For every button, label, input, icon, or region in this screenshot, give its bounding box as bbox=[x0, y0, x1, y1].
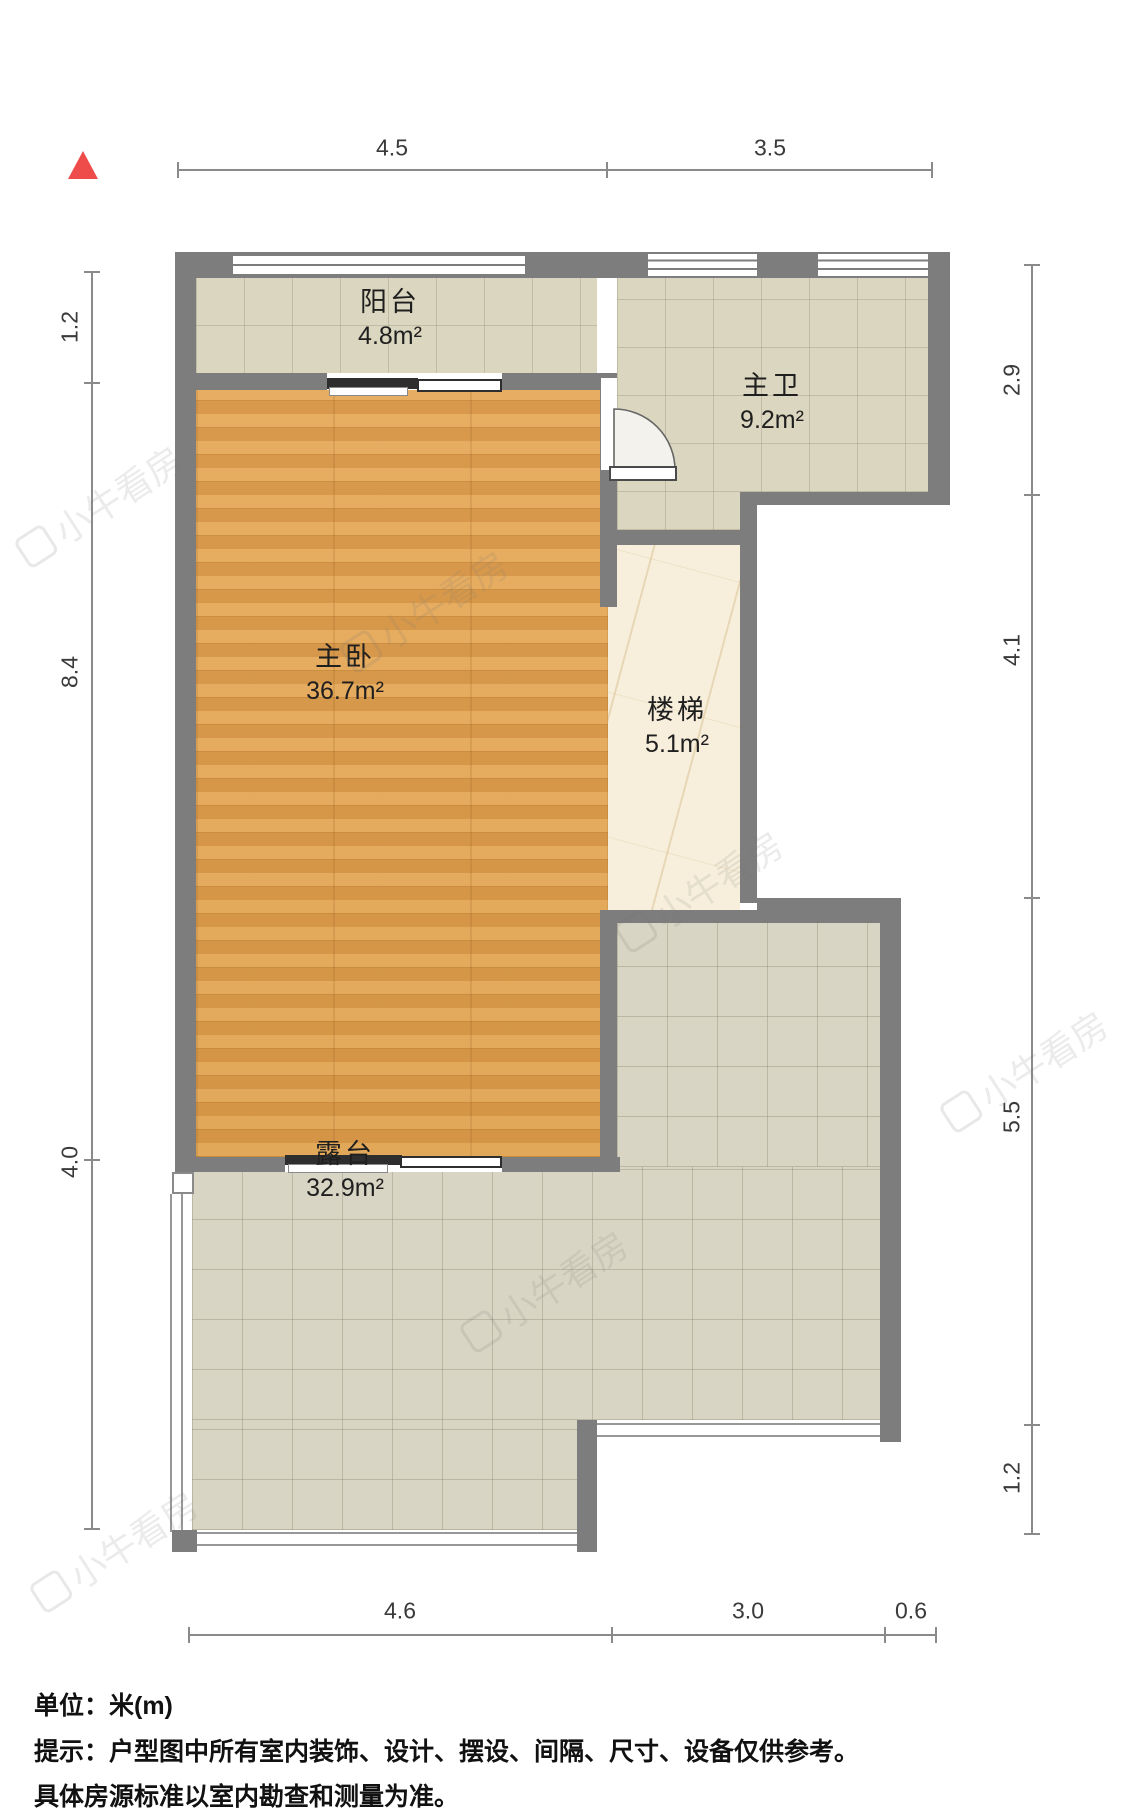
terrace-floor-upper bbox=[617, 923, 880, 1167]
room-name: 阳台 bbox=[358, 286, 422, 320]
dim-tick bbox=[84, 271, 100, 273]
bath-door-swing-arc bbox=[613, 408, 677, 472]
bath-door-leaf bbox=[609, 466, 677, 481]
dim-value: 4.5 bbox=[376, 135, 408, 162]
dim-line bbox=[1031, 265, 1033, 1535]
dim-line bbox=[178, 169, 933, 171]
watermark: 小牛看房 bbox=[8, 433, 192, 578]
dim-tick bbox=[1024, 1533, 1040, 1535]
room-name: 露台 bbox=[306, 1138, 384, 1172]
bath-window-1 bbox=[648, 252, 757, 278]
wall-bath-bottom-right bbox=[740, 492, 950, 505]
dim-tick bbox=[188, 1627, 190, 1643]
dim-tick bbox=[611, 1627, 613, 1643]
dim-line bbox=[91, 272, 93, 1530]
dim-tick bbox=[84, 1159, 100, 1161]
watermark-text: 小牛看房 bbox=[43, 433, 192, 555]
floorplan-page: 阳台 4.8m² 主卫 9.2m² 主卧 36.7m² 楼梯 5.1m² 露台 … bbox=[0, 0, 1125, 1810]
footer-unit-line: 单位：米(m) bbox=[34, 1686, 173, 1722]
watermark-logo-icon bbox=[938, 1088, 985, 1135]
dim-value: 4.0 bbox=[57, 1146, 84, 1178]
room-label-balcony: 阳台 4.8m² bbox=[358, 286, 422, 352]
dim-tick bbox=[1024, 897, 1040, 899]
dim-tick bbox=[884, 1627, 886, 1643]
room-name: 主卫 bbox=[740, 370, 804, 404]
master-bath-floor-ext bbox=[617, 492, 740, 530]
railing-post-middle bbox=[577, 1420, 597, 1552]
dim-value: 4.6 bbox=[384, 1598, 416, 1625]
room-area: 4.8m² bbox=[358, 320, 422, 353]
terrace-railing-bottom-left bbox=[172, 1532, 597, 1552]
north-arrow-icon bbox=[68, 151, 98, 179]
room-area: 36.7m² bbox=[306, 675, 384, 708]
footer-notice-line2: 具体房源标准以室内勘查和测量为准。 bbox=[34, 1777, 459, 1810]
wall-bedroom-right-lower bbox=[600, 910, 617, 1172]
dim-value: 2.9 bbox=[999, 364, 1026, 396]
room-area: 32.9m² bbox=[306, 1172, 384, 1205]
railing-post-top-left bbox=[172, 1172, 194, 1194]
master-bedroom-floor bbox=[196, 389, 608, 1157]
dim-tick bbox=[177, 162, 179, 178]
balcony-window bbox=[233, 254, 525, 276]
dim-line bbox=[189, 1634, 937, 1636]
dim-value: 1.2 bbox=[57, 311, 84, 343]
dim-value: 4.1 bbox=[999, 634, 1026, 666]
watermark-text: 小牛看房 bbox=[968, 998, 1117, 1120]
dim-value: 1.2 bbox=[999, 1462, 1026, 1494]
dim-tick bbox=[1024, 264, 1040, 266]
dim-tick bbox=[84, 382, 100, 384]
room-label-terrace: 露台 32.9m² bbox=[306, 1138, 384, 1204]
dim-tick bbox=[606, 162, 608, 178]
room-name: 楼梯 bbox=[645, 694, 709, 728]
dim-tick bbox=[1024, 1424, 1040, 1426]
dim-value: 8.4 bbox=[57, 656, 84, 688]
balcony-sliding-door-track bbox=[329, 387, 408, 396]
terrace-railing-bottom-right bbox=[597, 1423, 880, 1442]
dim-value: 0.6 bbox=[895, 1598, 927, 1625]
room-label-stairs: 楼梯 5.1m² bbox=[645, 694, 709, 760]
dim-tick bbox=[935, 1627, 937, 1643]
room-label-master-bath: 主卫 9.2m² bbox=[740, 370, 804, 436]
terrace-floor-lower bbox=[192, 1420, 577, 1530]
room-area: 9.2m² bbox=[740, 404, 804, 437]
room-area: 5.1m² bbox=[645, 728, 709, 761]
terrace-sliding-door-panel-white bbox=[400, 1156, 502, 1168]
footer-notice-line1: 提示：户型图中所有室内装饰、设计、摆设、间隔、尺寸、设备仅供参考。 bbox=[34, 1732, 859, 1768]
bath-window-2 bbox=[818, 252, 928, 278]
wall-bath-bottom-left bbox=[617, 530, 740, 545]
wall-left bbox=[175, 252, 196, 1172]
dim-value: 3.0 bbox=[732, 1598, 764, 1625]
balcony-sliding-door-panel-white bbox=[417, 379, 502, 392]
wall-terrace-right bbox=[880, 898, 901, 1442]
dim-tick bbox=[1024, 494, 1040, 496]
dim-tick bbox=[931, 162, 933, 178]
wall-right-bath bbox=[928, 252, 950, 505]
watermark-logo-icon bbox=[13, 523, 60, 570]
dim-value: 3.5 bbox=[754, 135, 786, 162]
watermark-logo-icon bbox=[28, 1568, 75, 1615]
